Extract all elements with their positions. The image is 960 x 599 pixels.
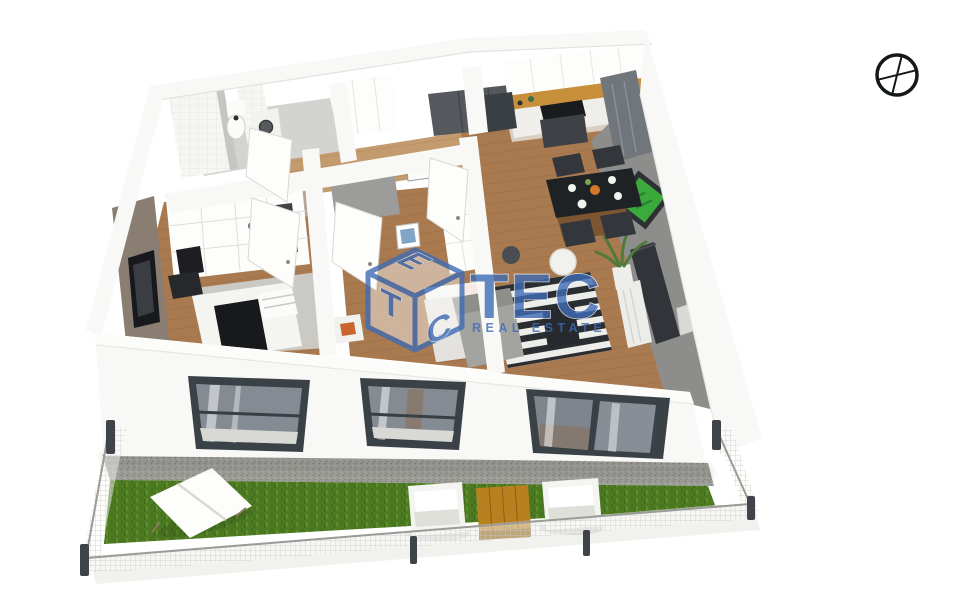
fence-post bbox=[106, 420, 115, 454]
chair-back bbox=[176, 246, 204, 276]
counter-plant bbox=[528, 96, 534, 102]
door-handle bbox=[456, 216, 460, 220]
armchair-seat-shade bbox=[414, 509, 460, 527]
fence-post bbox=[80, 544, 89, 576]
fence-post bbox=[410, 536, 417, 564]
watermark-subtitle-text: REAL ESTATE bbox=[472, 321, 606, 335]
door-handle bbox=[368, 262, 372, 266]
floor-plan-screenshot: E T C TEC REAL ESTATE bbox=[0, 0, 960, 599]
bowl bbox=[590, 185, 600, 195]
dining-chair bbox=[600, 211, 636, 239]
sliding-door bbox=[526, 389, 670, 459]
plate bbox=[614, 192, 622, 200]
plate bbox=[578, 200, 587, 209]
chair-seat bbox=[168, 271, 203, 299]
door-handle bbox=[286, 260, 290, 264]
counter-item bbox=[518, 101, 523, 106]
fence-post bbox=[712, 420, 721, 450]
plate bbox=[608, 176, 616, 184]
toilet bbox=[226, 100, 246, 139]
fence-post bbox=[747, 496, 755, 520]
toilet-hinge bbox=[234, 116, 239, 121]
apartment-3d-render: E T C TEC REAL ESTATE bbox=[0, 0, 960, 599]
window-left bbox=[188, 376, 310, 452]
fence-post bbox=[583, 530, 590, 556]
plant-pot bbox=[612, 264, 634, 290]
art-image bbox=[400, 228, 416, 244]
bowl-small bbox=[585, 179, 591, 185]
plate bbox=[568, 184, 576, 192]
dining-chair bbox=[560, 219, 596, 247]
blue-wall-art bbox=[396, 223, 420, 249]
oven-front bbox=[540, 114, 588, 148]
window-middle bbox=[360, 378, 466, 450]
orange-book bbox=[340, 322, 356, 336]
door-glass-right bbox=[594, 401, 656, 453]
